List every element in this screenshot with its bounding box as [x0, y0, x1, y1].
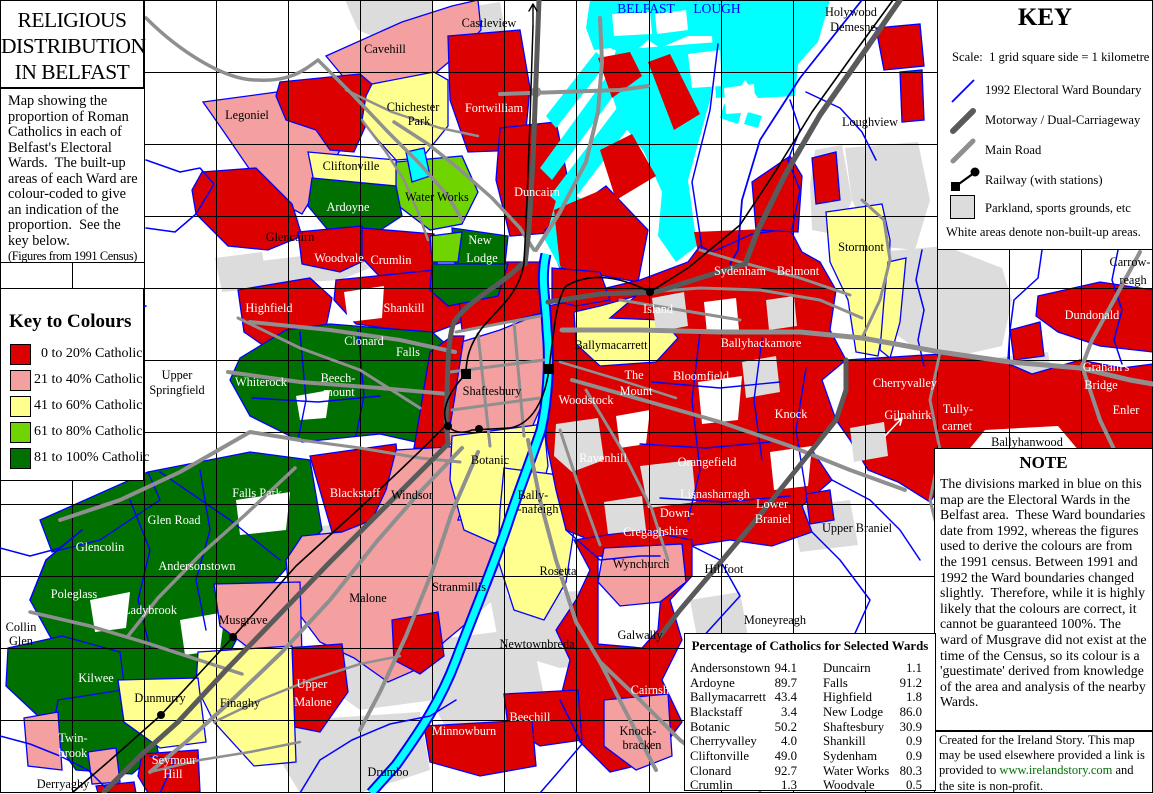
svg-text:Hillfoot: Hillfoot — [705, 562, 745, 576]
svg-text:Braniel: Braniel — [755, 512, 792, 526]
svg-text:Upper: Upper — [162, 368, 193, 382]
svg-text:Galwally: Galwally — [617, 628, 663, 642]
svg-text:The: The — [624, 368, 644, 382]
svg-text:Highfield: Highfield — [245, 301, 292, 315]
svg-text:Bridge: Bridge — [1084, 378, 1118, 392]
svg-text:Loughview: Loughview — [842, 115, 898, 129]
svg-text:Island: Island — [643, 302, 673, 316]
svg-text:Rosetta: Rosetta — [540, 564, 577, 578]
svg-text:Cavehill: Cavehill — [364, 42, 406, 56]
svg-text:Hill: Hill — [163, 767, 183, 781]
svg-text:Lisnasharragh: Lisnasharragh — [680, 487, 750, 501]
svg-text:mount: mount — [323, 385, 355, 399]
svg-text:Orangefield: Orangefield — [678, 455, 737, 469]
svg-text:Moneyreagh: Moneyreagh — [744, 613, 806, 627]
svg-text:Gilnahirk: Gilnahirk — [884, 408, 932, 422]
svg-text:Springfield: Springfield — [149, 383, 204, 397]
svg-text:Carrow-: Carrow- — [1110, 255, 1151, 269]
svg-text:Demesne: Demesne — [830, 20, 876, 34]
svg-text:Holywood: Holywood — [825, 5, 877, 19]
svg-text:Minnowburn: Minnowburn — [432, 724, 496, 738]
svg-text:Collin: Collin — [6, 620, 37, 634]
svg-text:Upper: Upper — [297, 677, 328, 691]
svg-text:Enler: Enler — [1113, 403, 1140, 417]
svg-text:Falls: Falls — [396, 345, 420, 359]
svg-text:Beech-: Beech- — [321, 371, 356, 385]
svg-text:Newtownbreda: Newtownbreda — [499, 637, 575, 651]
svg-text:brook: brook — [59, 746, 89, 760]
svg-text:Fortwilliam: Fortwilliam — [465, 101, 524, 115]
svg-text:Poleglass: Poleglass — [51, 587, 98, 601]
svg-text:Knock: Knock — [775, 407, 809, 421]
svg-text:carnet: carnet — [942, 419, 973, 433]
svg-text:Bally-: Bally- — [518, 488, 549, 502]
svg-text:Musgrave: Musgrave — [218, 613, 268, 627]
svg-text:bracken: bracken — [623, 738, 662, 752]
svg-text:Cherryvalley: Cherryvalley — [873, 376, 938, 390]
svg-text:Shankill: Shankill — [384, 301, 426, 315]
svg-text:-nafeigh: -nafeigh — [518, 502, 559, 516]
svg-text:Sydenham: Sydenham — [714, 264, 766, 278]
svg-text:Stranmillis: Stranmillis — [432, 580, 486, 594]
svg-text:Drumbo: Drumbo — [368, 765, 409, 779]
svg-text:Blackstaff: Blackstaff — [330, 486, 381, 500]
svg-text:Windsor: Windsor — [391, 488, 433, 502]
svg-text:Knock-: Knock- — [620, 724, 657, 738]
svg-text:Malone: Malone — [349, 591, 387, 605]
svg-text:Botanic: Botanic — [471, 453, 510, 467]
svg-text:Finaghy: Finaghy — [220, 696, 261, 710]
svg-text:Upper Braniel: Upper Braniel — [822, 521, 893, 535]
svg-text:Ballymacarrett: Ballymacarrett — [574, 338, 648, 352]
svg-text:New: New — [468, 233, 491, 247]
svg-text:reagh: reagh — [1119, 273, 1146, 287]
svg-text:Glen: Glen — [9, 634, 33, 648]
svg-text:Water Works: Water Works — [405, 190, 469, 204]
svg-text:Legoniel: Legoniel — [225, 108, 269, 122]
svg-text:Clonard: Clonard — [344, 334, 384, 348]
svg-text:Duncairn: Duncairn — [514, 185, 560, 199]
svg-text:Dunmurry: Dunmurry — [134, 691, 186, 705]
svg-text:Dundonald: Dundonald — [1065, 308, 1120, 322]
svg-text:Mount: Mount — [620, 384, 653, 398]
svg-text:Twin-: Twin- — [58, 731, 87, 745]
svg-text:Ballyhanwood: Ballyhanwood — [991, 435, 1063, 449]
svg-text:Down-: Down- — [660, 506, 694, 520]
svg-text:Lower: Lower — [756, 497, 788, 511]
svg-text:Seymour: Seymour — [152, 753, 196, 767]
svg-text:Tully-: Tully- — [943, 402, 973, 416]
svg-text:Castleview: Castleview — [462, 16, 517, 30]
svg-text:Glencolin: Glencolin — [76, 540, 125, 554]
svg-text:Malone: Malone — [294, 695, 332, 709]
svg-text:Ladybrook: Ladybrook — [123, 603, 178, 617]
svg-text:Cregagh: Cregagh — [623, 525, 665, 539]
svg-text:Falls Park: Falls Park — [232, 486, 282, 500]
svg-text:Graham's: Graham's — [1083, 360, 1130, 374]
svg-text:Woodvale: Woodvale — [314, 251, 364, 265]
svg-text:Glen Road: Glen Road — [148, 513, 201, 527]
svg-text:Chichester: Chichester — [387, 100, 440, 114]
svg-text:Park: Park — [408, 114, 431, 128]
svg-text:Crumlin: Crumlin — [371, 253, 412, 267]
svg-text:Glencairn: Glencairn — [266, 230, 314, 244]
svg-text:LOUGH: LOUGH — [693, 1, 740, 16]
svg-text:Cliftonville: Cliftonville — [323, 159, 380, 173]
svg-text:shire: shire — [664, 524, 688, 538]
svg-text:Belmont: Belmont — [777, 264, 820, 278]
svg-text:Woodstock: Woodstock — [558, 393, 614, 407]
svg-text:Lodge: Lodge — [466, 251, 498, 265]
svg-text:Derryaghy: Derryaghy — [37, 777, 90, 791]
svg-text:Ballyhackamore: Ballyhackamore — [721, 336, 802, 350]
svg-text:Beechill: Beechill — [510, 710, 552, 724]
svg-text:Wynchurch: Wynchurch — [613, 557, 670, 571]
svg-text:Ravenhill: Ravenhill — [579, 451, 627, 465]
svg-text:Kilwee: Kilwee — [78, 671, 114, 685]
svg-text:Ardoyne: Ardoyne — [326, 200, 370, 214]
svg-text:Bloomfield: Bloomfield — [673, 369, 729, 383]
svg-text:Cairnshill: Cairnshill — [631, 683, 680, 697]
svg-text:Andersonstown: Andersonstown — [158, 559, 235, 573]
svg-text:Whiterock: Whiterock — [235, 375, 288, 389]
svg-text:Shaftesbury: Shaftesbury — [463, 384, 523, 398]
svg-text:Stormont: Stormont — [838, 240, 884, 254]
svg-text:BELFAST: BELFAST — [617, 1, 675, 16]
